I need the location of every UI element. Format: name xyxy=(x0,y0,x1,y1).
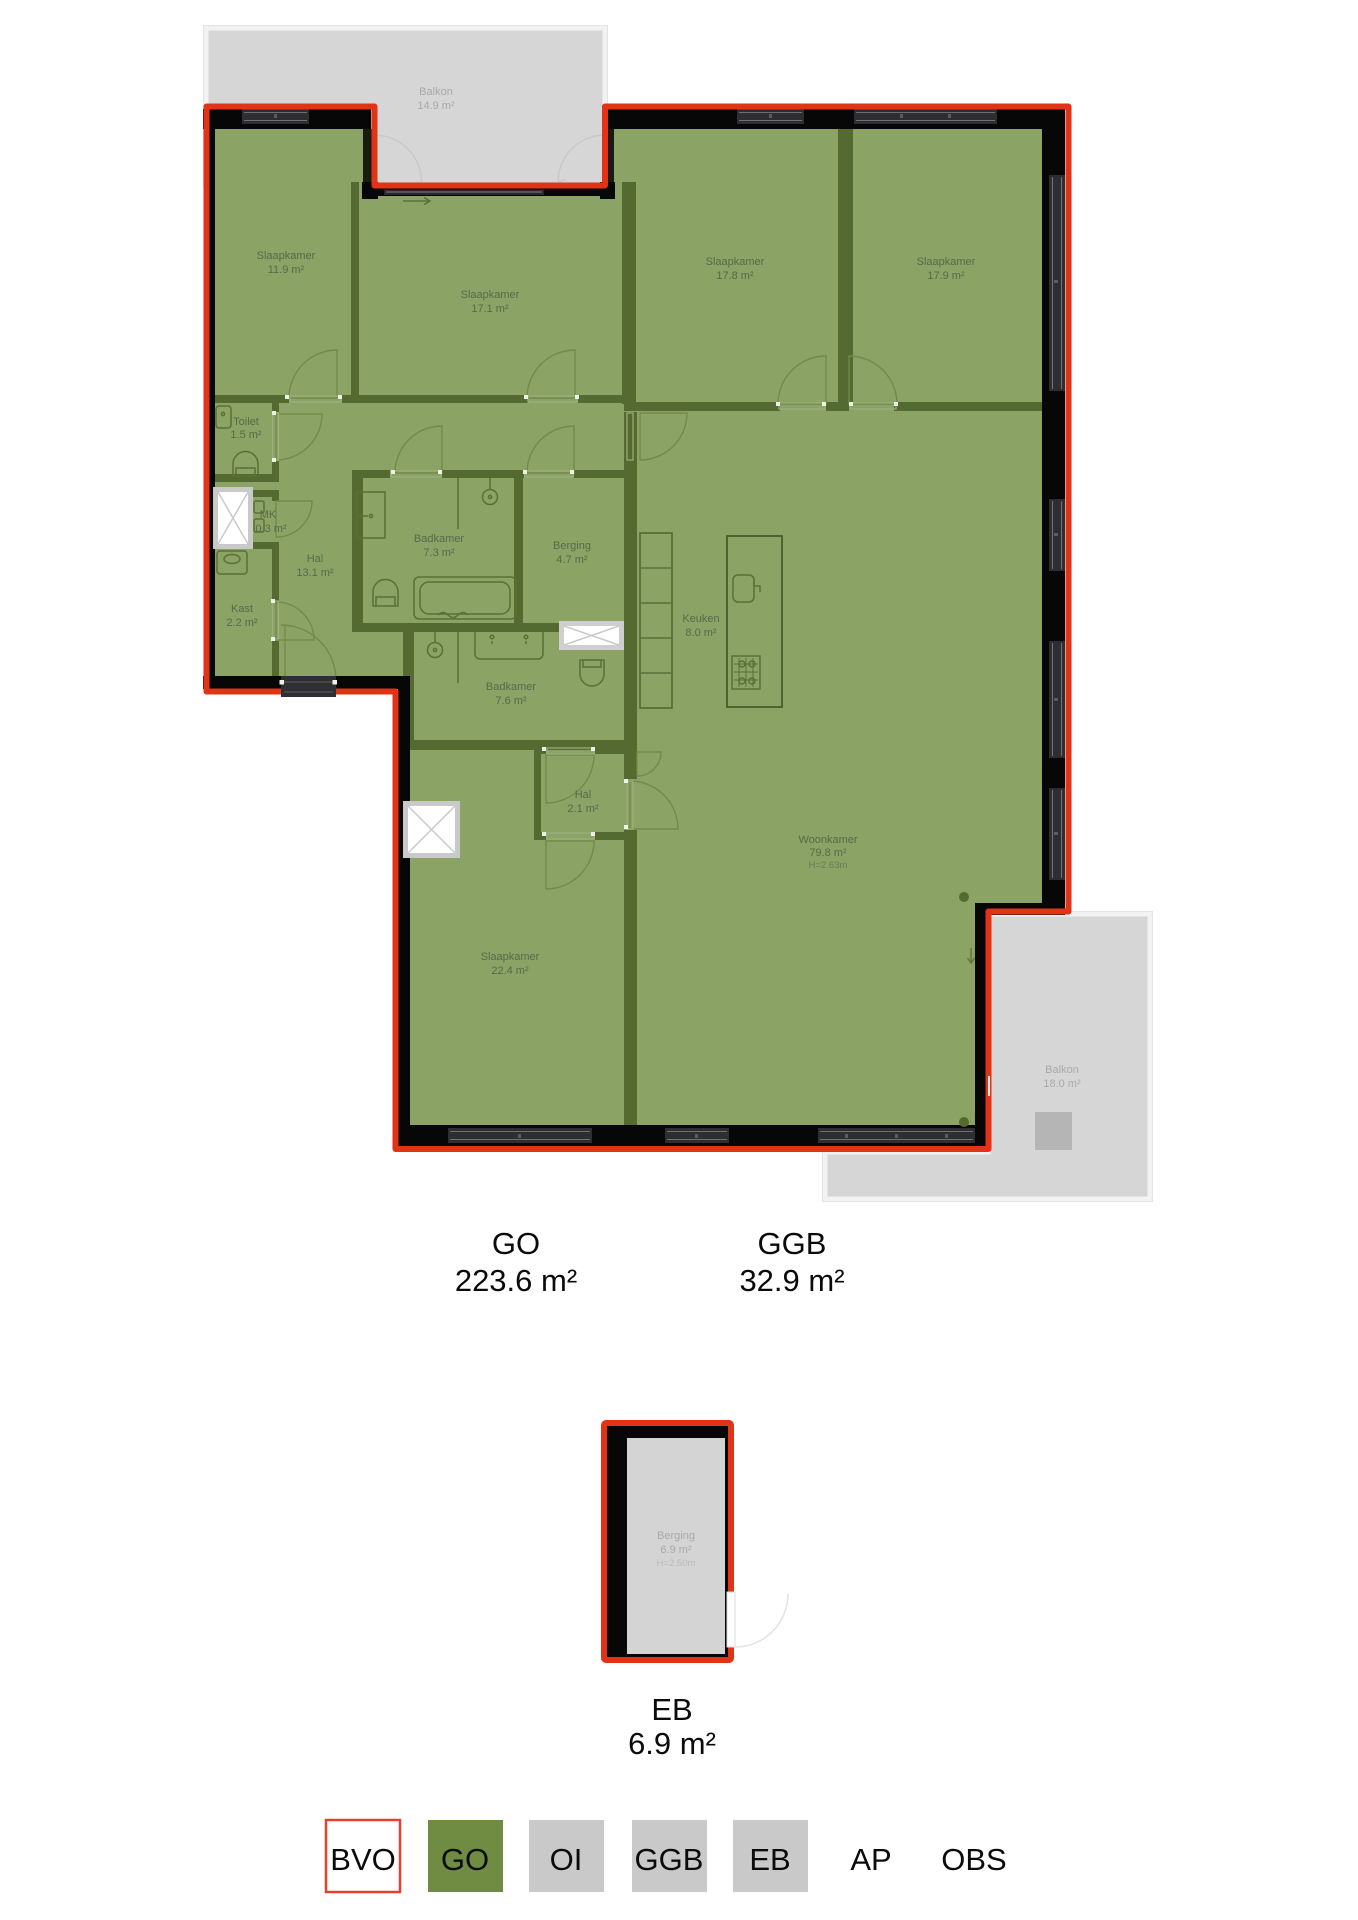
svg-text:Hal: Hal xyxy=(307,553,324,565)
svg-text:Slaapkamer: Slaapkamer xyxy=(917,256,976,268)
svg-text:Slaapkamer: Slaapkamer xyxy=(481,951,540,963)
svg-text:GGB: GGB xyxy=(758,1226,827,1261)
svg-text:Berging: Berging xyxy=(553,540,591,552)
svg-text:2.2 m²: 2.2 m² xyxy=(226,617,258,629)
svg-text:17.1 m²: 17.1 m² xyxy=(471,303,509,315)
svg-text:14.9 m²: 14.9 m² xyxy=(417,100,455,112)
svg-text:32.9 m²: 32.9 m² xyxy=(739,1263,844,1298)
svg-text:1.5 m²: 1.5 m² xyxy=(230,429,262,441)
svg-text:4.7 m²: 4.7 m² xyxy=(556,554,588,566)
svg-text:Keuken: Keuken xyxy=(682,613,719,625)
svg-text:Woonkamer: Woonkamer xyxy=(798,834,857,846)
svg-text:8.0 m²: 8.0 m² xyxy=(685,627,717,639)
svg-text:18.0 m²: 18.0 m² xyxy=(1043,1078,1081,1090)
svg-text:2.1 m²: 2.1 m² xyxy=(567,803,599,815)
svg-text:79.8 m²: 79.8 m² xyxy=(809,847,847,859)
svg-text:Hal: Hal xyxy=(575,789,592,801)
svg-text:GO: GO xyxy=(441,1842,489,1877)
svg-text:13.1 m²: 13.1 m² xyxy=(296,567,334,579)
svg-text:OBS: OBS xyxy=(941,1842,1006,1877)
svg-text:H=2.50m: H=2.50m xyxy=(657,1558,696,1569)
svg-text:11.9 m²: 11.9 m² xyxy=(268,264,305,276)
svg-text:H=2.63m: H=2.63m xyxy=(809,860,848,871)
svg-text:Badkamer: Badkamer xyxy=(414,533,464,545)
svg-text:17.8 m²: 17.8 m² xyxy=(716,270,754,282)
svg-text:223.6 m²: 223.6 m² xyxy=(455,1263,577,1298)
svg-text:Balkon: Balkon xyxy=(419,86,453,98)
svg-text:Badkamer: Badkamer xyxy=(486,681,536,693)
svg-text:BVO: BVO xyxy=(330,1842,395,1877)
svg-text:OI: OI xyxy=(550,1842,583,1877)
svg-text:MK: MK xyxy=(260,509,277,521)
svg-text:AP: AP xyxy=(850,1842,891,1877)
svg-text:7.6 m²: 7.6 m² xyxy=(495,695,527,707)
svg-text:6.9 m²: 6.9 m² xyxy=(628,1726,716,1761)
svg-text:6.9 m²: 6.9 m² xyxy=(660,1544,692,1556)
svg-text:EB: EB xyxy=(651,1692,692,1727)
svg-text:0.3 m²: 0.3 m² xyxy=(255,523,287,535)
svg-text:Berging: Berging xyxy=(657,1530,695,1542)
svg-text:7.3 m²: 7.3 m² xyxy=(423,547,455,559)
svg-text:22.4 m²: 22.4 m² xyxy=(491,965,529,977)
svg-text:Kast: Kast xyxy=(231,603,253,615)
svg-text:17.9 m²: 17.9 m² xyxy=(927,270,965,282)
svg-text:Slaapkamer: Slaapkamer xyxy=(257,250,316,262)
svg-text:Slaapkamer: Slaapkamer xyxy=(706,256,765,268)
svg-text:Toilet: Toilet xyxy=(233,416,259,428)
svg-text:EB: EB xyxy=(749,1842,790,1877)
svg-text:Slaapkamer: Slaapkamer xyxy=(461,289,520,301)
svg-text:Balkon: Balkon xyxy=(1045,1064,1079,1076)
svg-text:GGB: GGB xyxy=(635,1842,704,1877)
svg-text:GO: GO xyxy=(492,1226,540,1261)
